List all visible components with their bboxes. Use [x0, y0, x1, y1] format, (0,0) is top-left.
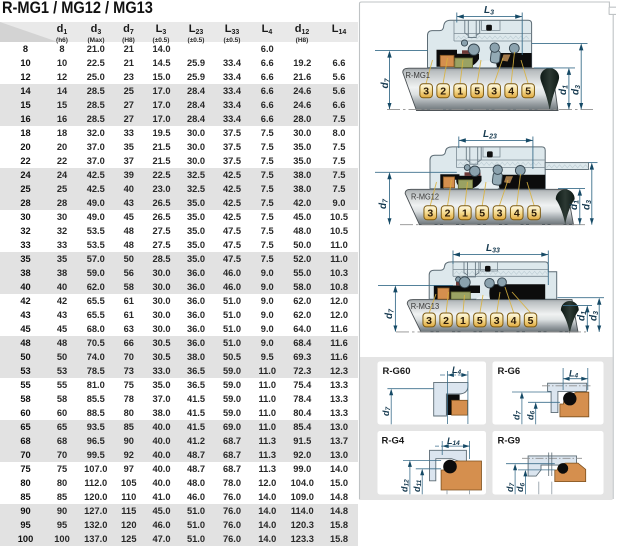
svg-text:2: 2: [440, 86, 446, 98]
svg-text:3: 3: [423, 86, 429, 98]
svg-text:3: 3: [427, 208, 433, 220]
svg-text:3: 3: [426, 315, 432, 327]
svg-text:R-G6: R-G6: [498, 366, 521, 377]
svg-text:5: 5: [531, 208, 537, 220]
svg-text:5: 5: [477, 315, 483, 327]
svg-text:3: 3: [497, 208, 503, 220]
svg-text:1: 1: [460, 315, 466, 327]
svg-text:R-MG1: R-MG1: [406, 70, 431, 80]
svg-text:1: 1: [457, 86, 463, 98]
svg-text:R-G9: R-G9: [498, 436, 521, 447]
svg-text:2: 2: [443, 315, 449, 327]
svg-text:5: 5: [474, 86, 480, 98]
svg-text:4: 4: [508, 86, 514, 98]
svg-text:5: 5: [479, 208, 485, 220]
svg-text:R-MG13: R-MG13: [411, 301, 440, 311]
svg-text:R-MG12: R-MG12: [411, 192, 439, 202]
svg-text:3: 3: [494, 315, 500, 327]
svg-text:5: 5: [528, 315, 534, 327]
svg-text:4: 4: [514, 208, 520, 220]
svg-text:2: 2: [445, 208, 451, 220]
svg-text:R-G60: R-G60: [383, 366, 411, 377]
svg-text:1: 1: [462, 208, 468, 220]
svg-text:R-G4: R-G4: [382, 436, 405, 447]
svg-text:5: 5: [525, 86, 531, 98]
svg-text:3: 3: [491, 86, 497, 98]
svg-text:4: 4: [511, 315, 517, 327]
